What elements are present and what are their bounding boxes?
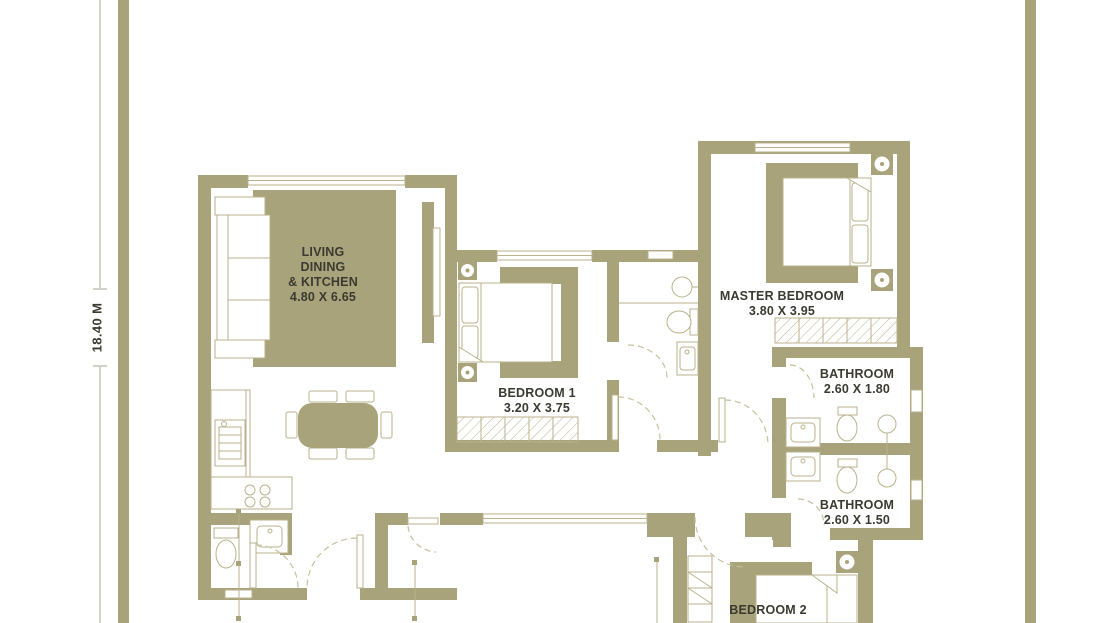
bathroom-bottom-sink — [786, 452, 820, 481]
bathroom-top-dims: 2.60 X 1.80 — [787, 382, 927, 397]
bathroom-top-toilet — [837, 407, 857, 441]
door-arcs — [250, 345, 824, 588]
master-bed — [783, 178, 871, 266]
dining-table — [286, 391, 392, 459]
leader-lines — [236, 509, 659, 623]
bathroom-top-shower — [878, 415, 896, 469]
living-room-dims: 4.80 X 6.65 — [253, 290, 393, 305]
living-room-label: LIVING DINING & KITCHEN 4.80 X 6.65 — [253, 245, 393, 305]
living-room-name: & KITCHEN — [253, 275, 393, 290]
ensuite-shower — [619, 277, 698, 303]
kitchen-counter — [211, 390, 250, 478]
bedroom2-label: BEDROOM 2 — [698, 603, 838, 618]
stove — [211, 477, 292, 509]
master-lamp — [871, 153, 893, 291]
bathroom-bottom-toilet — [837, 459, 857, 493]
bedroom2-lamp — [836, 551, 858, 573]
bathroom-bottom-shower — [878, 469, 896, 487]
bathroom-bottom-label: BATHROOM 2.60 X 1.50 — [787, 498, 927, 528]
bathroom-bottom-name: BATHROOM — [787, 498, 927, 513]
master-wardrobe — [775, 318, 897, 343]
plot-dimension-label: 18.40 M — [90, 286, 105, 370]
bedroom2-name: BEDROOM 2 — [698, 603, 838, 618]
master-bedroom-name: MASTER BEDROOM — [697, 289, 867, 304]
bedroom1-name: BEDROOM 1 — [467, 386, 607, 401]
wc-toilet — [214, 528, 238, 568]
bathroom-top-sink — [786, 418, 820, 447]
master-bedroom-label: MASTER BEDROOM 3.80 X 3.95 — [697, 289, 867, 319]
ensuite-toilet — [667, 309, 698, 335]
bedroom1-bed — [459, 283, 552, 362]
bathroom-top-name: BATHROOM — [787, 367, 927, 382]
bedroom1-dims: 3.20 X 3.75 — [467, 401, 607, 416]
ensuite-sink — [677, 342, 698, 375]
bathroom-top-label: BATHROOM 2.60 X 1.80 — [787, 367, 927, 397]
master-bedroom-dims: 3.80 X 3.95 — [697, 304, 867, 319]
living-room-name: DINING — [253, 260, 393, 275]
floor-plan-canvas — [0, 0, 1110, 623]
floor-plan: 18.40 M LIVING DINING & KITCHEN 4.80 X 6… — [0, 0, 1110, 623]
living-room-name: LIVING — [253, 245, 393, 260]
bathroom-bottom-dims: 2.60 X 1.50 — [787, 513, 927, 528]
bedroom1-wardrobe — [457, 417, 578, 442]
bedroom1-label: BEDROOM 1 3.20 X 3.75 — [467, 386, 607, 416]
